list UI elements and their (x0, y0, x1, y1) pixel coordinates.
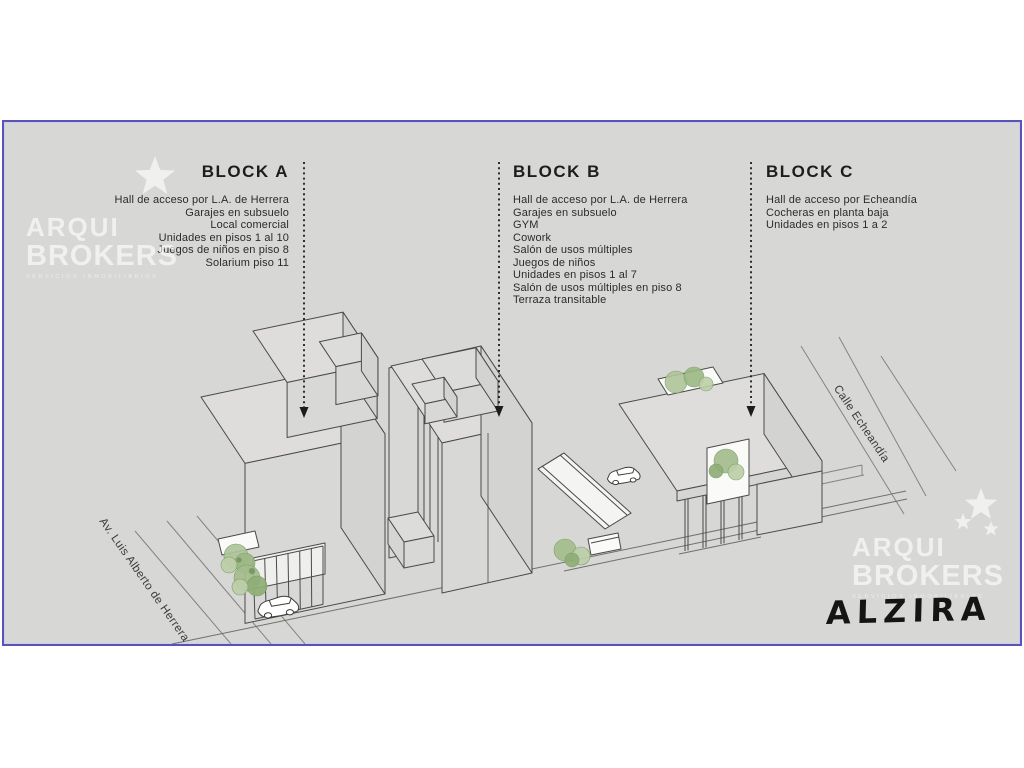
garage-ramp (538, 453, 631, 529)
car (607, 467, 641, 485)
feature-line: Cocheras en planta baja (766, 207, 917, 220)
feature-line: Garajes en subsuelo (513, 207, 687, 220)
feature-line: Hall de acceso por Echeandía (766, 194, 917, 207)
block-b-building (388, 346, 532, 593)
page: BLOCK A Hall de acceso por L.A. de Herre… (0, 0, 1024, 768)
feature-line: Juegos de niños (513, 257, 687, 270)
drawing-canvas: BLOCK A Hall de acceso por L.A. de Herre… (2, 120, 1022, 646)
block-b-title: BLOCK B (513, 162, 687, 182)
brand-tagline: SERVICIOS INMOBILIARIOS (26, 275, 178, 281)
feature-line: Terraza transitable (513, 294, 687, 307)
block-b-info: BLOCK B Hall de acceso por L.A. de Herre… (513, 162, 687, 307)
feature-line: Unidades en pisos 1 al 7 (513, 269, 687, 282)
block-a-title: BLOCK A (115, 162, 289, 182)
star-icon (954, 488, 998, 536)
feature-line: Hall de acceso por L.A. de Herrera (513, 194, 687, 207)
brand-line2: BROKERS (852, 562, 1004, 591)
feature-line: Hall de acceso por L.A. de Herrera (115, 194, 289, 207)
feature-line: Salón de usos múltiples (513, 244, 687, 257)
block-c-title: BLOCK C (766, 162, 917, 182)
feature-line: Unidades en pisos 1 a 2 (766, 219, 917, 232)
watermark-brand: ARQUI BROKERS SERVICIOS INMOBILIARIOS (26, 214, 178, 281)
brand-line1: ARQUI (852, 534, 1004, 560)
feature-line: GYM (513, 219, 687, 232)
feature-line: Cowork (513, 232, 687, 245)
brand-line1: ARQUI (26, 214, 178, 240)
brand-line2: BROKERS (26, 242, 178, 271)
block-c-info: BLOCK C Hall de acceso por Echeandía Coc… (766, 162, 917, 232)
block-a-building (201, 312, 385, 623)
feature-line: Salón de usos múltiples en piso 8 (513, 282, 687, 295)
project-name: ALZIRA (826, 590, 977, 632)
